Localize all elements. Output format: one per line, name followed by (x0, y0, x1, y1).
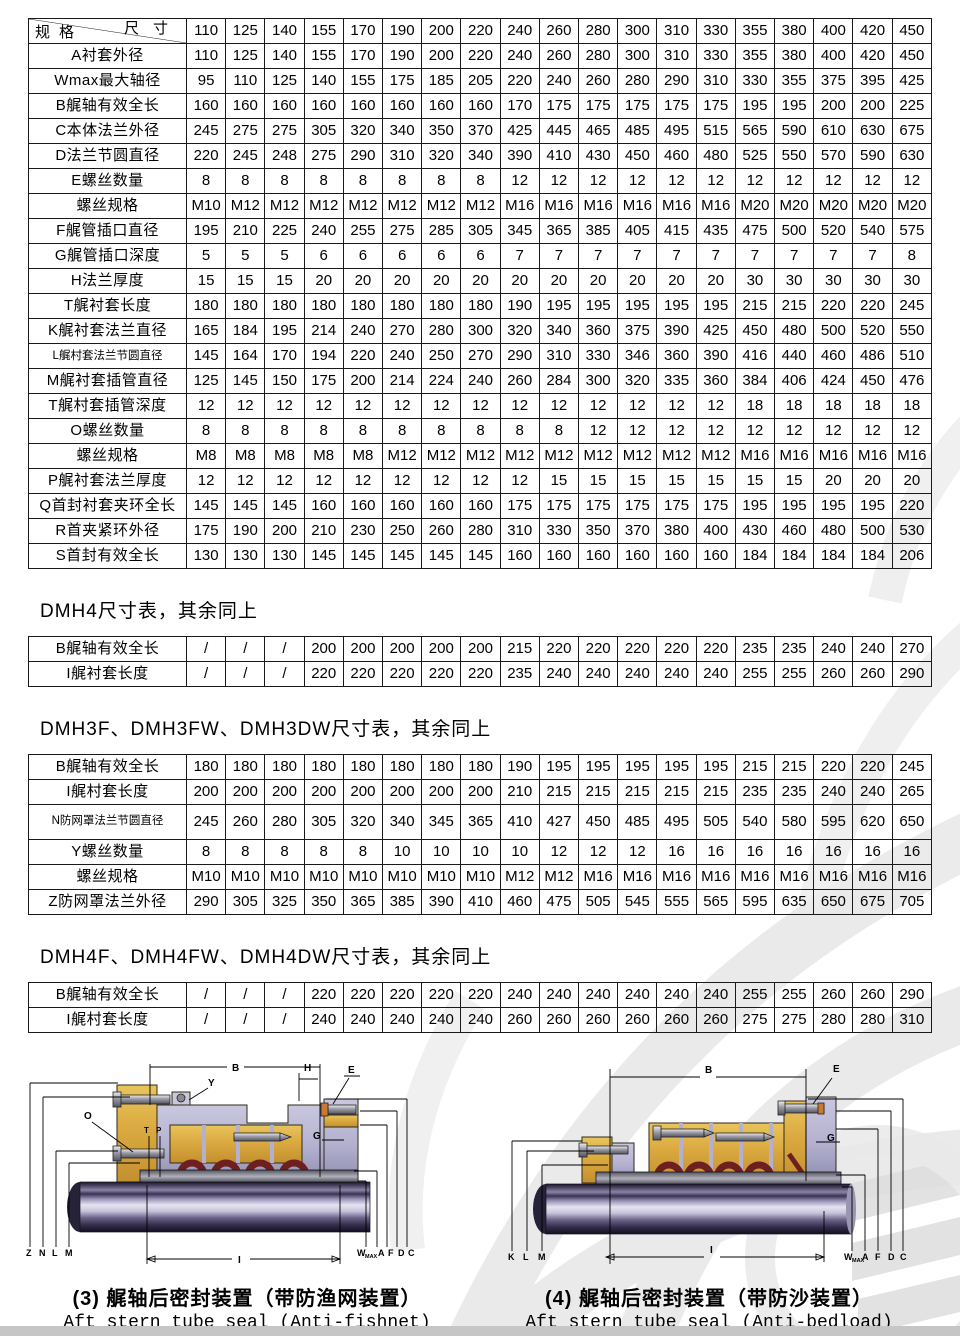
value-cell: 8 (226, 419, 265, 444)
value-cell: 125 (187, 369, 226, 394)
value-cell: 15 (618, 469, 657, 494)
value-cell: 145 (226, 494, 265, 519)
value-cell: 285 (422, 219, 461, 244)
value-cell: 260 (853, 983, 892, 1008)
value-cell: M12 (422, 444, 461, 469)
value-cell: 195 (775, 494, 814, 519)
dim-label-d: D (888, 1252, 895, 1262)
value-cell: 330 (539, 519, 578, 544)
value-cell: M16 (735, 865, 774, 890)
value-cell: 340 (383, 119, 422, 144)
value-cell: 430 (735, 519, 774, 544)
value-cell: 415 (657, 219, 696, 244)
value-cell: 8 (461, 169, 500, 194)
value-cell: 220 (343, 662, 382, 687)
value-cell: 390 (696, 344, 735, 369)
row-label-cell: 螺丝规格 (29, 444, 187, 469)
value-cell: M16 (814, 865, 853, 890)
value-cell: 220 (187, 144, 226, 169)
value-cell: 8 (461, 419, 500, 444)
value-cell: M16 (775, 865, 814, 890)
value-cell: 200 (461, 780, 500, 805)
value-cell: 410 (500, 805, 539, 840)
value-cell: 16 (775, 840, 814, 865)
value-cell: 95 (187, 69, 226, 94)
value-cell: 240 (461, 369, 500, 394)
value-cell: 215 (696, 780, 735, 805)
value-cell: 12 (304, 394, 343, 419)
value-cell: 220 (696, 637, 735, 662)
value-cell: 20 (422, 269, 461, 294)
value-cell: M16 (500, 194, 539, 219)
value-cell: 650 (892, 805, 931, 840)
value-cell: 6 (422, 244, 461, 269)
value-cell: 8 (265, 169, 304, 194)
value-cell: 210 (500, 780, 539, 805)
value-cell: 220 (304, 983, 343, 1008)
row-label-cell: 螺丝规格 (29, 194, 187, 219)
dim-label-f: F (388, 1248, 394, 1258)
value-cell: 475 (539, 890, 578, 915)
value-cell: / (226, 662, 265, 687)
value-cell: 340 (383, 805, 422, 840)
value-cell: 195 (775, 94, 814, 119)
value-cell: 16 (853, 840, 892, 865)
row-label-cell: N防网罩法兰节圆直径 (29, 805, 187, 840)
value-cell: M12 (265, 194, 304, 219)
value-cell: 180 (226, 294, 265, 319)
value-cell: 15 (265, 269, 304, 294)
value-cell: 7 (539, 244, 578, 269)
value-cell: 290 (892, 983, 931, 1008)
value-cell: 20 (892, 469, 931, 494)
value-cell: 410 (461, 890, 500, 915)
value-cell: 385 (579, 219, 618, 244)
column-header-cell: 355 (735, 19, 774, 44)
column-header-cell: 140 (265, 19, 304, 44)
table-row: M艉衬套插管直径12514515017520021422424026028430… (29, 369, 932, 394)
value-cell: M16 (696, 194, 735, 219)
value-cell: 12 (500, 169, 539, 194)
value-cell: 12 (539, 169, 578, 194)
value-cell: 175 (539, 494, 578, 519)
value-cell: 12 (461, 394, 500, 419)
value-cell: 425 (696, 319, 735, 344)
value-cell: 460 (814, 344, 853, 369)
value-cell: / (187, 983, 226, 1008)
value-cell: 145 (187, 494, 226, 519)
value-cell: 220 (853, 755, 892, 780)
value-cell: / (265, 1008, 304, 1033)
value-cell: 12 (383, 469, 422, 494)
row-label-cell: S首封有效全长 (29, 544, 187, 569)
value-cell: 215 (657, 780, 696, 805)
value-cell: 265 (892, 780, 931, 805)
value-cell: 7 (814, 244, 853, 269)
value-cell: 145 (304, 544, 343, 569)
value-cell: 12 (579, 419, 618, 444)
value-cell: 360 (696, 369, 735, 394)
value-cell: M8 (265, 444, 304, 469)
value-cell: 7 (696, 244, 735, 269)
value-cell: 260 (226, 805, 265, 840)
value-cell: 20 (853, 469, 892, 494)
main-dimension-table: 尺寸规格110125140155170190200220240260280300… (28, 18, 932, 569)
value-cell: 255 (735, 983, 774, 1008)
value-cell: 220 (422, 983, 461, 1008)
value-cell: 245 (892, 755, 931, 780)
value-cell: 200 (383, 780, 422, 805)
value-cell: 400 (696, 519, 735, 544)
value-cell: 406 (775, 369, 814, 394)
value-cell: 180 (422, 755, 461, 780)
dim-label-k: K (508, 1252, 515, 1262)
value-cell: 565 (735, 119, 774, 144)
value-cell: 140 (304, 69, 343, 94)
value-cell: 240 (853, 637, 892, 662)
value-cell: 214 (383, 369, 422, 394)
value-cell: 260 (814, 983, 853, 1008)
value-cell: 195 (814, 494, 853, 519)
value-cell: 310 (539, 344, 578, 369)
value-cell: 12 (187, 394, 226, 419)
value-cell: M10 (461, 865, 500, 890)
value-cell: 7 (579, 244, 618, 269)
value-cell: 8 (343, 169, 382, 194)
value-cell: 280 (265, 805, 304, 840)
table-row: B艉轴有效全长180180180180180180180180190195195… (29, 755, 932, 780)
value-cell: 375 (814, 69, 853, 94)
value-cell: M8 (226, 444, 265, 469)
value-cell: 10 (422, 840, 461, 865)
value-cell: 705 (892, 890, 931, 915)
value-cell: 340 (461, 144, 500, 169)
row-label-cell: T艉衬套长度 (29, 294, 187, 319)
value-cell: 220 (814, 294, 853, 319)
value-cell: 460 (657, 144, 696, 169)
value-cell: 170 (500, 94, 539, 119)
value-cell: 16 (735, 840, 774, 865)
row-label-cell: Z防网罩法兰外径 (29, 890, 187, 915)
value-cell: M16 (892, 444, 931, 469)
dmh3f-dimension-table: B艉轴有效全长180180180180180180180180190195195… (28, 754, 932, 915)
value-cell: 145 (265, 494, 304, 519)
value-cell: M16 (814, 444, 853, 469)
value-cell: 10 (461, 840, 500, 865)
row-label-cell: B艉轴有效全长 (29, 94, 187, 119)
value-cell: 160 (500, 544, 539, 569)
value-cell: 195 (579, 755, 618, 780)
value-cell: 12 (579, 840, 618, 865)
column-header-cell: 330 (696, 19, 735, 44)
value-cell: 345 (422, 805, 461, 840)
value-cell: 130 (187, 544, 226, 569)
value-cell: 280 (814, 1008, 853, 1033)
value-cell: 305 (304, 805, 343, 840)
value-cell: M16 (853, 444, 892, 469)
value-cell: 220 (539, 637, 578, 662)
value-cell: 220 (579, 637, 618, 662)
value-cell: 486 (853, 344, 892, 369)
value-cell: 525 (735, 144, 774, 169)
value-cell: 220 (461, 44, 500, 69)
value-cell: 440 (775, 344, 814, 369)
value-cell: 200 (853, 94, 892, 119)
value-cell: 275 (226, 119, 265, 144)
value-cell: 520 (853, 319, 892, 344)
value-cell: 245 (892, 294, 931, 319)
value-cell: 235 (500, 662, 539, 687)
value-cell: 260 (500, 369, 539, 394)
corner-spec-label: 规格 (35, 25, 83, 41)
value-cell: 480 (696, 144, 735, 169)
value-cell: 15 (579, 469, 618, 494)
value-cell: 200 (343, 369, 382, 394)
value-cell: 427 (539, 805, 578, 840)
value-cell: 215 (539, 780, 578, 805)
value-cell: 190 (383, 44, 422, 69)
value-cell: 195 (696, 294, 735, 319)
value-cell: 8 (343, 840, 382, 865)
table-row: I艉衬套长度///2202202202202202352402402402402… (29, 662, 932, 687)
corner-size-label: 尺寸 (124, 21, 182, 37)
value-cell: 180 (383, 755, 422, 780)
value-cell: 180 (343, 294, 382, 319)
value-cell: 235 (735, 637, 774, 662)
value-cell: 248 (265, 144, 304, 169)
value-cell: 20 (657, 269, 696, 294)
value-cell: 180 (461, 294, 500, 319)
value-cell: 345 (500, 219, 539, 244)
row-label-cell: B艉轴有效全长 (29, 637, 187, 662)
value-cell: 570 (814, 144, 853, 169)
dim-label-a: A (378, 1248, 385, 1258)
value-cell: 18 (775, 394, 814, 419)
value-cell: 280 (579, 44, 618, 69)
value-cell: 12 (422, 394, 461, 419)
value-cell: 245 (187, 119, 226, 144)
value-cell: 180 (226, 755, 265, 780)
value-cell: 250 (422, 344, 461, 369)
value-cell: 200 (265, 780, 304, 805)
value-cell: M10 (383, 865, 422, 890)
value-cell: 225 (265, 219, 304, 244)
value-cell: 635 (775, 890, 814, 915)
value-cell: 424 (814, 369, 853, 394)
value-cell: 240 (343, 319, 382, 344)
dim-label-m: M (538, 1252, 546, 1262)
value-cell: 12 (735, 419, 774, 444)
value-cell: 7 (775, 244, 814, 269)
value-cell: 280 (618, 69, 657, 94)
value-cell: 330 (735, 69, 774, 94)
value-cell: 12 (265, 394, 304, 419)
value-cell: 240 (814, 637, 853, 662)
value-cell: 275 (735, 1008, 774, 1033)
value-cell: 155 (304, 44, 343, 69)
value-cell: 215 (735, 294, 774, 319)
dmh4-dimension-table: B艉轴有效全长///200200200200200215220220220220… (28, 636, 932, 687)
table-row: E螺丝数量888888881212121212121212121212 (29, 169, 932, 194)
value-cell: 495 (657, 805, 696, 840)
table-row: I艉村套长度2002002002002002002002002102152152… (29, 780, 932, 805)
caption-zh-left: (3) 艉轴后密封装置（带防渔网装置） (22, 1282, 472, 1311)
value-cell: 145 (461, 544, 500, 569)
value-cell: 12 (422, 469, 461, 494)
value-cell: 195 (657, 755, 696, 780)
value-cell: 12 (461, 469, 500, 494)
value-cell: 230 (343, 519, 382, 544)
value-cell: 195 (539, 755, 578, 780)
dim-label-o: O (84, 1111, 92, 1122)
row-label-cell: I艉村套长度 (29, 1008, 187, 1033)
value-cell: 300 (579, 369, 618, 394)
value-cell: 160 (461, 94, 500, 119)
value-cell: 255 (343, 219, 382, 244)
document-content: 尺寸规格110125140155170190200220240260280300… (0, 0, 960, 1333)
value-cell: / (187, 662, 226, 687)
value-cell: 240 (383, 1008, 422, 1033)
value-cell: 10 (500, 840, 539, 865)
value-cell: 15 (657, 469, 696, 494)
row-label-cell: G艉管插口深度 (29, 244, 187, 269)
value-cell: 12 (775, 419, 814, 444)
value-cell: M10 (226, 865, 265, 890)
value-cell: 245 (187, 805, 226, 840)
section-heading-dmh4f: DMH4F、DMH4FW、DMH4DW尺寸表，其余同上 (40, 942, 932, 969)
value-cell: M16 (618, 194, 657, 219)
table-row: H法兰厚度15151520202020202020202020203030303… (29, 269, 932, 294)
dim-label-h: H (304, 1063, 311, 1074)
value-cell: 260 (618, 1008, 657, 1033)
value-cell: 380 (657, 519, 696, 544)
dim-label-i: I (238, 1255, 241, 1266)
value-cell: 6 (304, 244, 343, 269)
table-row: O螺丝数量8888888888121212121212121212 (29, 419, 932, 444)
value-cell: 200 (304, 637, 343, 662)
value-cell: 150 (265, 369, 304, 394)
value-cell: 210 (226, 219, 265, 244)
value-cell: 260 (579, 69, 618, 94)
value-cell: 30 (892, 269, 931, 294)
dim-label-p: P (156, 1126, 162, 1135)
value-cell: 12 (853, 419, 892, 444)
value-cell: 195 (618, 294, 657, 319)
value-cell: M16 (735, 444, 774, 469)
value-cell: 375 (618, 319, 657, 344)
column-header-cell: 170 (343, 19, 382, 44)
value-cell: 160 (539, 544, 578, 569)
value-cell: 425 (892, 69, 931, 94)
value-cell: 240 (853, 780, 892, 805)
value-cell: 140 (265, 44, 304, 69)
value-cell: 305 (461, 219, 500, 244)
value-cell: 565 (696, 890, 735, 915)
value-cell: 175 (304, 369, 343, 394)
value-cell: M12 (226, 194, 265, 219)
value-cell: 240 (579, 662, 618, 687)
value-cell: 12 (657, 419, 696, 444)
value-cell: 365 (461, 805, 500, 840)
value-cell: 500 (775, 219, 814, 244)
row-label-cell: B艉轴有效全长 (29, 755, 187, 780)
value-cell: 195 (696, 755, 735, 780)
value-cell: 12 (226, 469, 265, 494)
value-cell: 195 (579, 294, 618, 319)
value-cell: 7 (657, 244, 696, 269)
value-cell: 10 (383, 840, 422, 865)
value-cell: 240 (461, 1008, 500, 1033)
dmh4f-dimension-table: B艉轴有效全长///220220220220220240240240240240… (28, 982, 932, 1033)
value-cell: 450 (735, 319, 774, 344)
value-cell: / (265, 637, 304, 662)
value-cell: 175 (657, 94, 696, 119)
value-cell: 200 (383, 637, 422, 662)
value-cell: 12 (618, 419, 657, 444)
value-cell: 200 (226, 780, 265, 805)
value-cell: 260 (500, 1008, 539, 1033)
value-cell: 240 (500, 983, 539, 1008)
column-header-cell: 125 (226, 19, 265, 44)
row-label-cell: D法兰节圆直径 (29, 144, 187, 169)
table-row: I艉村套长度///2402402402402402602602602602602… (29, 1008, 932, 1033)
value-cell: 8 (539, 419, 578, 444)
value-cell: M12 (461, 194, 500, 219)
column-header-cell: 200 (422, 19, 461, 44)
row-label-cell: A衬套外径 (29, 44, 187, 69)
value-cell: 180 (187, 755, 226, 780)
value-cell: 340 (539, 319, 578, 344)
dim-label-l: L (523, 1252, 529, 1262)
value-cell: 320 (343, 119, 382, 144)
value-cell: 540 (735, 805, 774, 840)
value-cell: 430 (579, 144, 618, 169)
value-cell: 145 (343, 544, 382, 569)
value-cell: 290 (500, 344, 539, 369)
value-cell: 165 (187, 319, 226, 344)
value-cell: M12 (539, 865, 578, 890)
value-cell: 8 (187, 419, 226, 444)
value-cell: M12 (657, 444, 696, 469)
value-cell: 240 (383, 344, 422, 369)
value-cell: M20 (853, 194, 892, 219)
value-cell: 195 (657, 294, 696, 319)
value-cell: 160 (304, 94, 343, 119)
value-cell: 445 (539, 119, 578, 144)
value-cell: 12 (539, 394, 578, 419)
value-cell: M12 (304, 194, 343, 219)
value-cell: 195 (265, 319, 304, 344)
dim-label-f: F (875, 1252, 881, 1262)
value-cell: 195 (735, 494, 774, 519)
value-cell: 220 (853, 294, 892, 319)
value-cell: 220 (383, 983, 422, 1008)
value-cell: 125 (226, 44, 265, 69)
value-cell: 190 (500, 294, 539, 319)
value-cell: 290 (892, 662, 931, 687)
value-cell: 595 (814, 805, 853, 840)
row-label-cell: P艉衬套法兰厚度 (29, 469, 187, 494)
value-cell: 18 (853, 394, 892, 419)
value-cell: 20 (696, 269, 735, 294)
value-cell: 175 (579, 494, 618, 519)
value-cell: 220 (343, 344, 382, 369)
value-cell: 6 (383, 244, 422, 269)
value-cell: 240 (539, 662, 578, 687)
value-cell: 160 (422, 94, 461, 119)
column-header-cell: 300 (618, 19, 657, 44)
value-cell: 30 (735, 269, 774, 294)
